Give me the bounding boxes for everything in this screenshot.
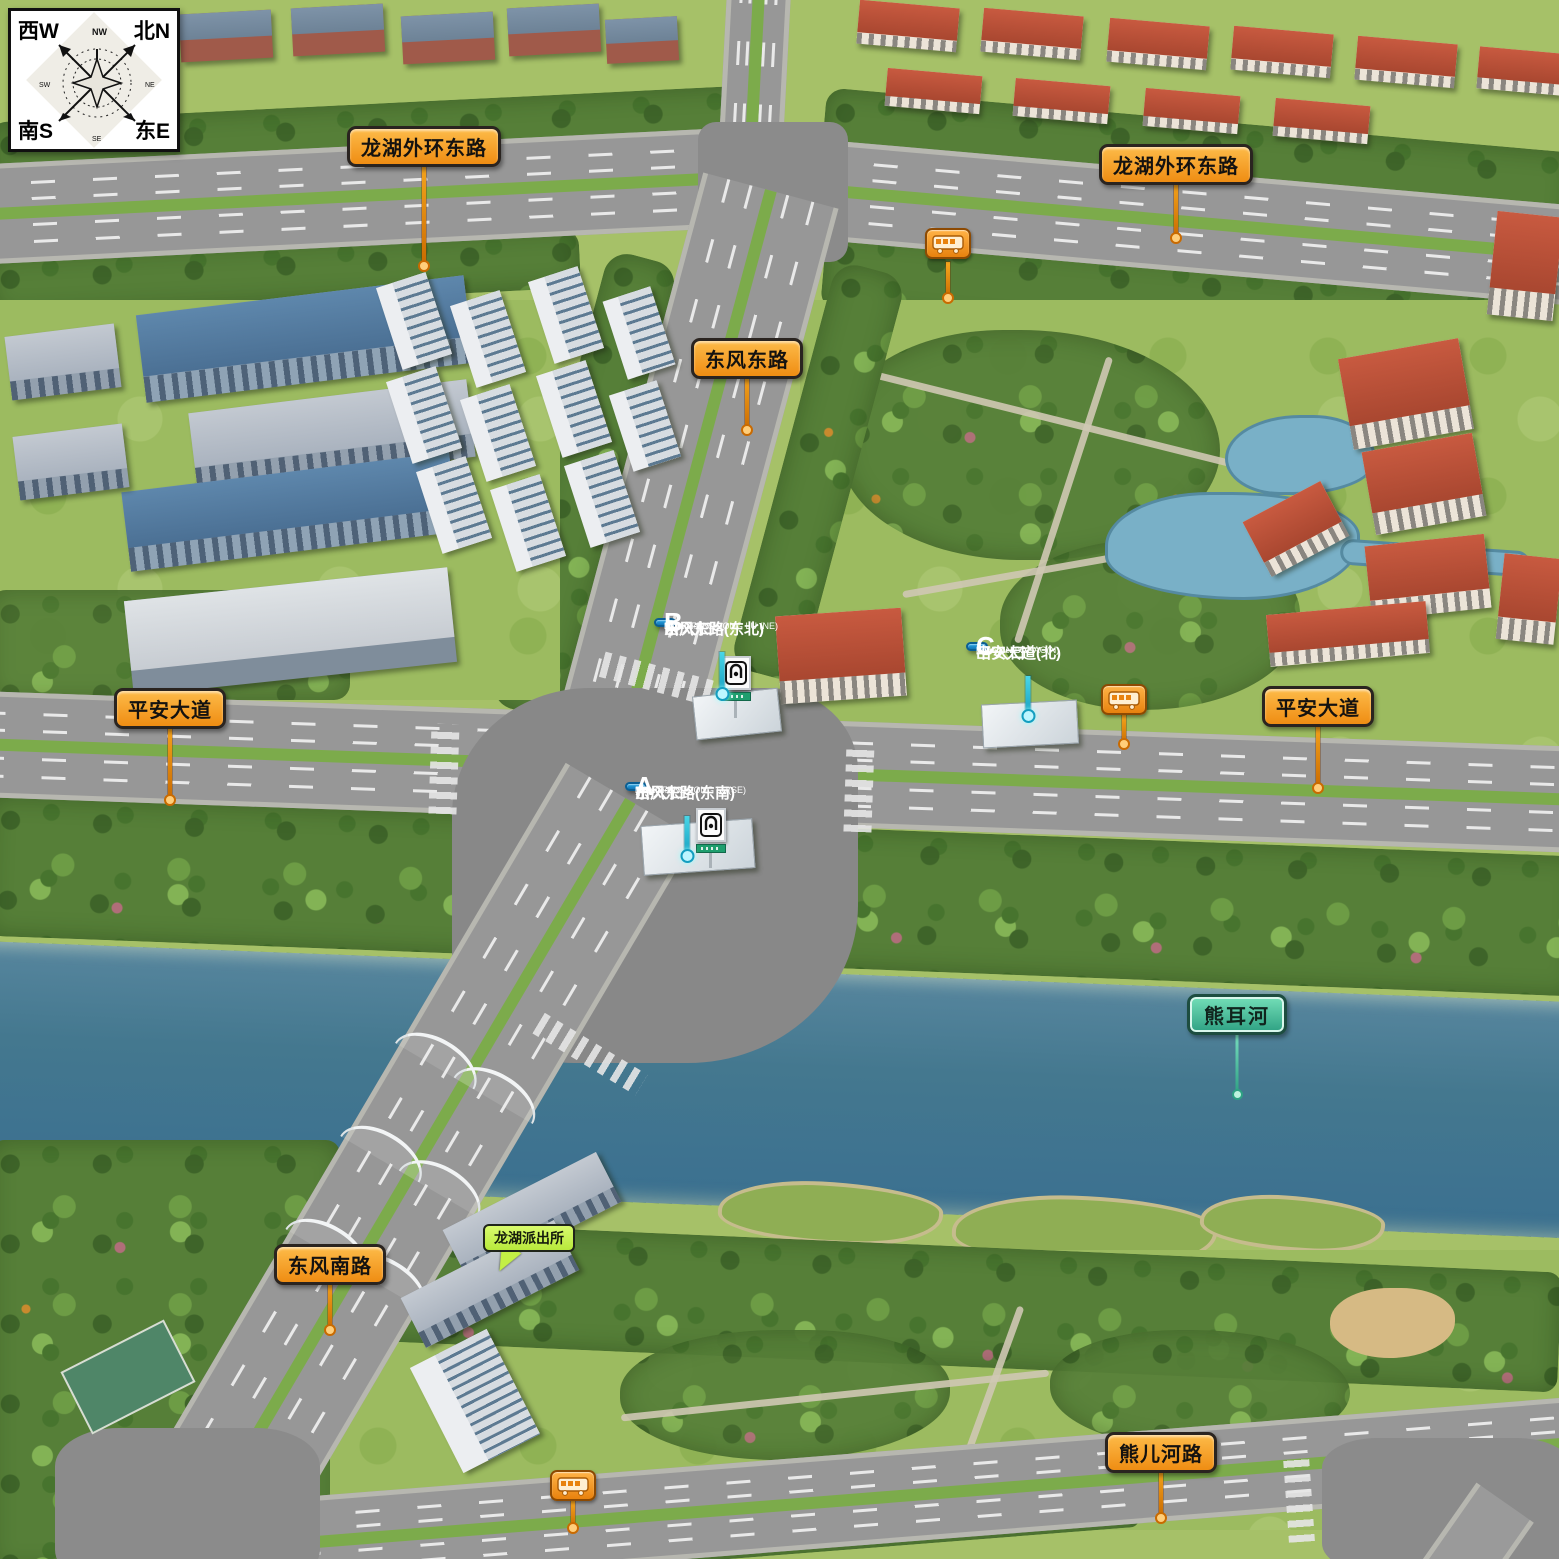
road-label-stem [168,722,172,800]
building-row-top-left-1 [179,10,273,63]
building-row-top-left-3 [401,12,495,65]
bus-stop-icon[interactable] [1101,684,1147,715]
building-row-top-right-6 [1476,46,1559,95]
compass-west-label: 西W [18,15,59,45]
metro-logo-icon [721,656,751,690]
entrance-label-a[interactable]: A 出入口 Entrance/Exit 东风东路(东南) DONGFENGDON… [625,782,647,791]
svg-text:NW: NW [92,27,107,37]
building-row-top-right-1 [856,0,959,52]
bus-stop-icon[interactable] [925,228,971,259]
office-slab-west-2 [13,424,130,501]
building-row-top-left-5 [605,16,679,64]
entrance-label-b[interactable]: B 出入口 Entrance/Exit 东风东路(东北) DONGFENGDON… [654,618,676,627]
intersection-bottom-left [55,1428,320,1559]
road-label-stem [745,372,749,430]
road-label-stem [422,160,426,266]
road-label-longhu-west[interactable]: 龙湖外环东路 [347,126,501,167]
compass-north-label: 北N [134,15,170,45]
entrance-a-stem [685,816,690,856]
entrance-road-en: DONGFENGDONG LU(SE) [635,786,746,795]
river-label-stem [1236,1028,1239,1094]
river-label-xiongerhe[interactable]: 熊耳河 [1187,994,1287,1035]
road-label-stem [1174,178,1178,238]
building-row2-top-right-2 [1013,78,1111,124]
building-row-top-left-2 [291,4,385,57]
road-label-xionger[interactable]: 熊儿河路 [1105,1432,1217,1473]
road-label-dongfeng-nan[interactable]: 东风南路 [274,1244,386,1285]
road-label-pingan-east[interactable]: 平安大道 [1262,686,1374,727]
svg-text:NE: NE [145,82,155,89]
svg-text:SE: SE [92,136,102,143]
bus-stop-stem [1122,714,1126,744]
bus-stop-stem [946,262,950,298]
zebra-main-west [428,724,459,815]
red-roof-building-near-b [775,608,907,705]
metro-sign-pole-a [709,852,712,868]
building-row-top-right-3 [1106,18,1209,71]
metro-sign-pole-b [734,700,737,718]
road-label-dongfeng-dong[interactable]: 东风东路 [691,338,803,379]
entrance-road-en: PING'AN DADAO(N) [976,646,1059,655]
road-label-stem [1159,1466,1163,1518]
campus-east-edge-2 [1496,553,1559,645]
building-row-top-right-2 [980,8,1083,61]
campus-east-edge-1 [1487,211,1559,321]
city-3d-map: 龙湖外环东路 龙湖外环东路 东风东路 平安大道 平安大道 东风南路 熊儿河路 熊… [0,0,1559,1559]
building-row2-top-right-3 [1143,88,1241,134]
entrance-b-stem [720,652,725,694]
building-row2-top-right-4 [1273,98,1371,144]
entrance-c-stem [1026,676,1031,716]
building-row2-top-right-1 [885,68,983,114]
entrance-label-c[interactable]: C 出入口 Entrance/Exit 平安大道(北) PING'AN DADA… [966,642,988,651]
compass-south-label: 南S [18,115,53,145]
poi-label-police-station[interactable]: 龙湖派出所 [483,1224,575,1252]
svg-text:SW: SW [39,82,51,89]
metro-sign-banner-a [696,844,726,853]
road-label-stem [1316,720,1320,788]
building-row-top-right-5 [1354,36,1457,89]
bus-stop-stem [571,1500,575,1528]
road-label-stem [328,1278,332,1330]
building-row-top-left-4 [507,4,601,57]
zebra-main-east [843,742,874,833]
bus-stop-icon[interactable] [550,1470,596,1501]
building-row-top-right-4 [1230,26,1333,79]
compass-rose: NW NE SW SE 西W 北N 南S 东E [8,8,180,152]
office-slab-west [5,324,122,401]
entrance-road-en: DONGFENGDONG LU (NE) [664,622,778,631]
road-label-longhu-east[interactable]: 龙湖外环东路 [1099,144,1253,185]
road-label-pingan-west[interactable]: 平安大道 [114,688,226,729]
compass-east-label: 东E [135,115,170,145]
metro-logo-icon [696,808,726,842]
